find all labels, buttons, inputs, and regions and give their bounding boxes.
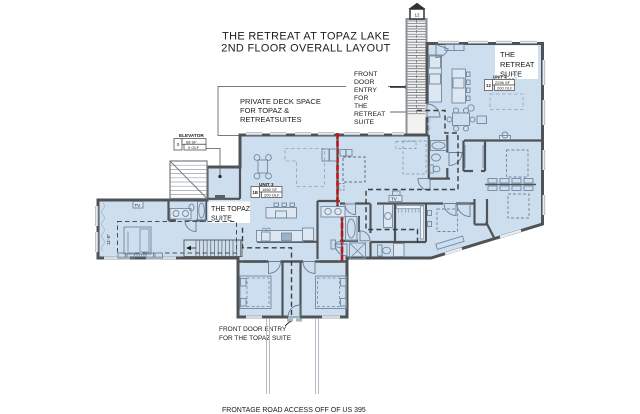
svg-text:THE: THE [500, 50, 515, 59]
svg-text:1850 SF: 1850 SF [262, 187, 278, 192]
svg-text:THE: THE [354, 103, 368, 110]
svg-text:2296 SF: 2296 SF [495, 80, 511, 85]
svg-text:SUITE: SUITE [354, 119, 374, 126]
svg-text:ELEVATOR: ELEVATOR [179, 133, 204, 138]
svg-text:FOR TOPAZ &: FOR TOPAZ & [240, 106, 289, 115]
svg-text:2ND FLOOR OVERALL LAYOUT: 2ND FLOOR OVERALL LAYOUT [221, 43, 390, 55]
svg-text:FRONT DOOR ENTRY: FRONT DOOR ENTRY [219, 326, 287, 333]
svg-text:ENTRY: ENTRY [354, 87, 377, 94]
svg-text:FOR THE TOPAZ SUITE: FOR THE TOPAZ SUITE [219, 335, 292, 342]
svg-text:RETREATSUITES: RETREATSUITES [240, 115, 302, 124]
svg-text:SUITE: SUITE [211, 215, 232, 223]
svg-text:0 OLF: 0 OLF [188, 145, 200, 150]
svg-text:FRONT: FRONT [354, 71, 377, 78]
svg-text:DOOR: DOOR [354, 79, 374, 86]
svg-text:11'-0": 11'-0" [106, 234, 111, 245]
svg-text:1B: 1B [253, 190, 258, 195]
svg-text:RETREAT: RETREAT [354, 111, 385, 118]
svg-text:THE TOPAZ: THE TOPAZ [211, 205, 251, 213]
svg-text:12: 12 [414, 13, 420, 18]
svg-text:TV: TV [135, 203, 141, 208]
svg-text:THE RETREAT AT TOPAZ LAKE: THE RETREAT AT TOPAZ LAKE [222, 31, 390, 43]
svg-text:68 SF: 68 SF [186, 139, 197, 144]
svg-text:FOR: FOR [354, 95, 368, 102]
svg-text:PRIVATE DECK SPACE: PRIVATE DECK SPACE [240, 97, 321, 106]
svg-text:TV: TV [391, 197, 397, 202]
svg-text:RETREAT: RETREAT [500, 60, 535, 69]
svg-text:0: 0 [177, 142, 180, 147]
svg-text:200 OLF: 200 OLF [264, 193, 280, 198]
svg-text:FRONTAGE ROAD ACCESS OFF OF US: FRONTAGE ROAD ACCESS OFF OF US 395 [222, 407, 366, 414]
svg-text:12: 12 [486, 83, 491, 88]
svg-text:200 OLF: 200 OLF [497, 86, 513, 91]
